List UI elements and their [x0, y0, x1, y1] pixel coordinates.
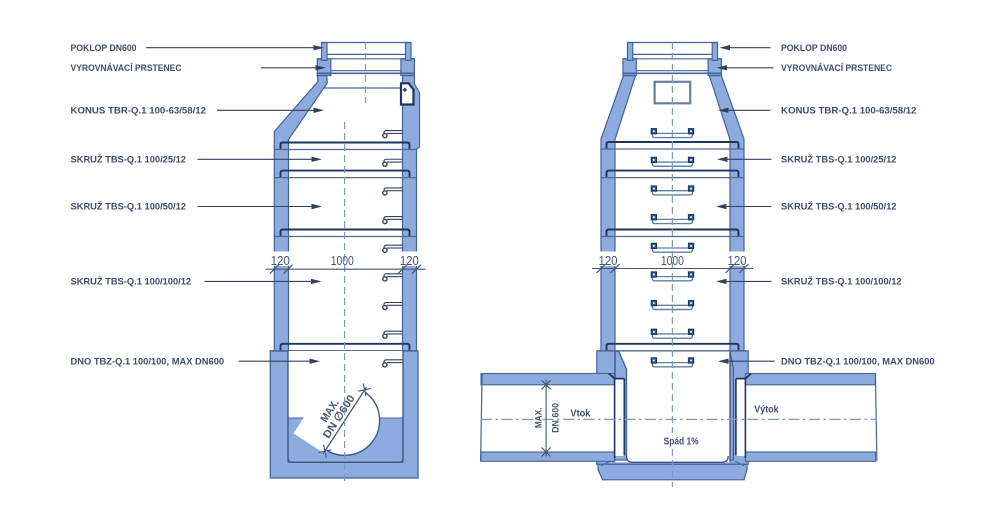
svg-text:POKLOP DN600: POKLOP DN600	[781, 42, 847, 53]
svg-text:120: 120	[400, 254, 419, 268]
svg-text:Vtok: Vtok	[570, 408, 590, 419]
svg-text:VYROVNÁVACÍ PRSTENEC: VYROVNÁVACÍ PRSTENEC	[71, 62, 182, 73]
svg-text:SKRUŽ TBS-Q.1 100/25/12: SKRUŽ TBS-Q.1 100/25/12	[71, 154, 187, 165]
svg-text:KONUS TBR-Q.1 100-63/58/12: KONUS TBR-Q.1 100-63/58/12	[71, 105, 207, 116]
svg-text:1000: 1000	[661, 254, 684, 268]
svg-text:VYROVNÁVACÍ PRSTENEC: VYROVNÁVACÍ PRSTENEC	[781, 62, 892, 73]
svg-text:DN 600: DN 600	[551, 403, 561, 433]
svg-text:Výtok: Výtok	[754, 405, 779, 416]
svg-text:MAX.: MAX.	[534, 408, 544, 429]
svg-text:Spád 1%: Spád 1%	[664, 436, 699, 447]
svg-text:SKRUŽ TBS-Q.1 100/25/12: SKRUŽ TBS-Q.1 100/25/12	[781, 154, 897, 165]
svg-text:POKLOP DN600: POKLOP DN600	[71, 42, 137, 53]
svg-text:120: 120	[728, 254, 747, 268]
svg-text:DNO TBZ-Q.1 100/100, MAX DN600: DNO TBZ-Q.1 100/100, MAX DN600	[781, 355, 935, 366]
svg-text:KONUS TBR-Q.1 100-63/58/12: KONUS TBR-Q.1 100-63/58/12	[781, 105, 917, 116]
svg-text:1000: 1000	[331, 254, 354, 268]
svg-text:120: 120	[599, 254, 618, 268]
svg-text:DNO TBZ-Q.1 100/100, MAX DN600: DNO TBZ-Q.1 100/100, MAX DN600	[71, 355, 225, 366]
svg-text:SKRUŽ TBS-Q.1 100/50/12: SKRUŽ TBS-Q.1 100/50/12	[781, 201, 897, 212]
svg-text:SKRUŽ TBS-Q.1 100/50/12: SKRUŽ TBS-Q.1 100/50/12	[71, 201, 187, 212]
svg-text:120: 120	[271, 254, 290, 268]
svg-text:SKRUŽ TBS-Q.1 100/100/12: SKRUŽ TBS-Q.1 100/100/12	[71, 276, 192, 287]
svg-text:SKRUŽ TBS-Q.1 100/100/12: SKRUŽ TBS-Q.1 100/100/12	[781, 276, 902, 287]
